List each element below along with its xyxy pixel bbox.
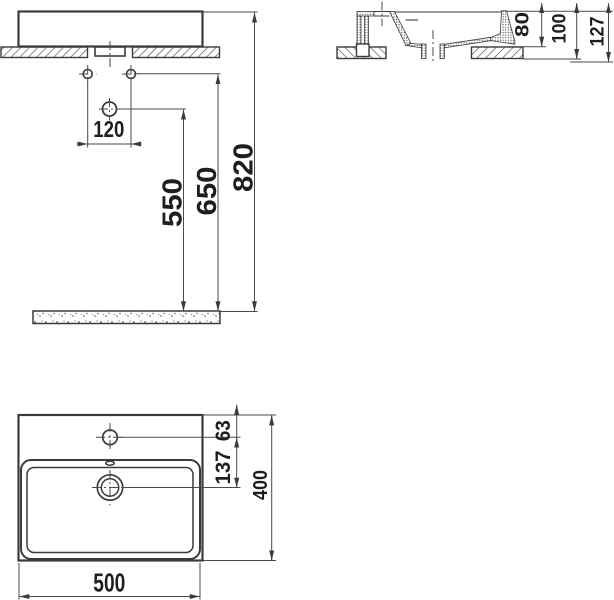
dim-label-820: 820 (228, 143, 259, 192)
dim-label-400: 400 (250, 470, 272, 500)
side-section-view: 80 100 127 (337, 2, 613, 64)
dim-faucet-inset: 63 137 (211, 405, 237, 488)
mounting-foot (357, 44, 370, 57)
dim-rim-height: 820 (228, 13, 259, 311)
floor-section (33, 311, 220, 324)
dim-label-80: 80 (513, 12, 534, 37)
dim-label-137: 137 (211, 450, 235, 484)
dim-depth: 400 (250, 416, 272, 561)
dim-width: 500 (19, 563, 200, 600)
dim-front-edge-depth: 80 (513, 3, 542, 46)
washbasin-technical-drawing: 120 550 650 820 (0, 0, 614, 600)
dim-label-550: 550 (157, 178, 188, 227)
counter-section-right (133, 47, 220, 58)
dim-total-depth: 127 (588, 3, 609, 62)
dim-label-127: 127 (588, 17, 609, 47)
dim-label-650: 650 (191, 167, 222, 216)
overflow-slot (106, 461, 114, 465)
technical-drawing-page: 120 550 650 820 (0, 0, 614, 600)
dim-label-120: 120 (93, 116, 124, 142)
front-view: 120 550 650 820 (1, 12, 259, 324)
dim-hole-spacing: 120 (77, 80, 143, 148)
plan-view: 63 137 400 500 (19, 405, 277, 600)
dim-drain-height: 550 (157, 110, 188, 311)
dim-label-500: 500 (93, 568, 125, 598)
dim-label-100: 100 (550, 14, 571, 44)
dim-label-63: 63 (211, 420, 235, 441)
counter-section-left (1, 47, 88, 58)
counter-section-front (472, 47, 524, 59)
dim-supply-height: 650 (191, 74, 222, 311)
